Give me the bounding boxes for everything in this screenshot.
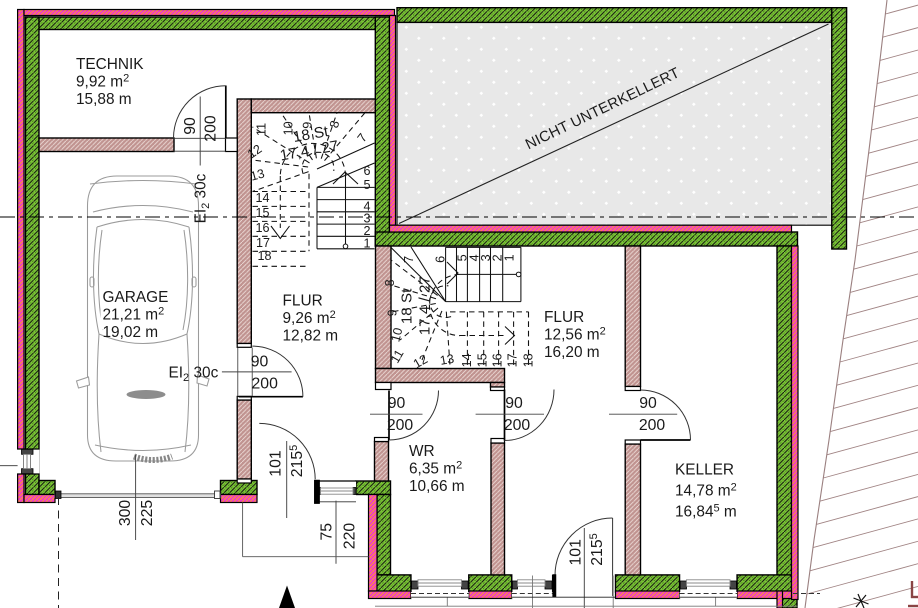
svg-text:6: 6	[363, 164, 370, 178]
svg-text:16: 16	[255, 221, 269, 235]
svg-text:6,35 m2: 6,35 m2	[409, 460, 462, 478]
svg-text:75: 75	[319, 523, 336, 541]
svg-text:90: 90	[251, 354, 269, 371]
svg-text:10,66 m: 10,66 m	[409, 478, 465, 495]
svg-text:EI2 30c: EI2 30c	[169, 365, 219, 385]
svg-text:16,20 m: 16,20 m	[544, 344, 600, 361]
svg-text:TECHNIK: TECHNIK	[76, 56, 144, 73]
svg-text:14,78 m2: 14,78 m2	[675, 482, 737, 500]
svg-text:14: 14	[460, 353, 474, 367]
svg-text:5: 5	[363, 178, 370, 192]
svg-text:200: 200	[504, 417, 531, 434]
svg-text:200: 200	[203, 115, 220, 142]
svg-text:90: 90	[182, 117, 199, 135]
svg-text:17: 17	[256, 236, 270, 250]
svg-text:2: 2	[363, 224, 370, 238]
svg-text:EI2 30c: EI2 30c	[193, 173, 213, 223]
svg-text:200: 200	[252, 376, 279, 393]
svg-text:6: 6	[434, 256, 448, 263]
svg-text:9,26 m2: 9,26 m2	[283, 309, 336, 327]
svg-text:17,4 / 27: 17,4 / 27	[417, 276, 434, 335]
svg-text:101: 101	[267, 450, 284, 477]
svg-text:WR: WR	[409, 443, 435, 460]
svg-text:FLUR: FLUR	[283, 293, 323, 310]
svg-text:15: 15	[476, 353, 490, 367]
svg-text:16: 16	[491, 353, 505, 367]
svg-text:90: 90	[388, 395, 406, 412]
svg-text:18 St: 18 St	[398, 288, 415, 324]
svg-text:13: 13	[439, 352, 455, 368]
svg-text:90: 90	[639, 395, 657, 412]
svg-text:200: 200	[387, 417, 414, 434]
svg-text:17: 17	[506, 353, 520, 367]
svg-text:18: 18	[522, 353, 536, 367]
svg-text:21,21 m2: 21,21 m2	[103, 306, 165, 324]
svg-text:15: 15	[255, 206, 269, 220]
svg-text:4: 4	[468, 254, 482, 261]
svg-text:12,56 m2: 12,56 m2	[544, 326, 606, 344]
svg-text:19,02 m: 19,02 m	[103, 324, 159, 341]
svg-text:1: 1	[363, 236, 370, 250]
svg-text:300: 300	[117, 500, 134, 527]
svg-text:12,82 m: 12,82 m	[283, 328, 339, 345]
svg-text:101: 101	[567, 539, 584, 566]
svg-text:225: 225	[139, 500, 156, 527]
svg-text:1: 1	[503, 254, 517, 261]
svg-text:FLUR: FLUR	[544, 309, 584, 326]
svg-text:8: 8	[383, 279, 397, 286]
svg-text:14: 14	[255, 191, 269, 205]
svg-text:KELLER: KELLER	[675, 462, 734, 479]
svg-text:90: 90	[505, 395, 523, 412]
svg-text:200: 200	[639, 417, 666, 434]
svg-text:4: 4	[363, 199, 370, 213]
svg-text:7: 7	[402, 256, 416, 263]
svg-text:GARAGE: GARAGE	[103, 289, 169, 306]
svg-text:3: 3	[363, 212, 370, 226]
svg-text:15,88 m: 15,88 m	[76, 91, 132, 108]
svg-text:11: 11	[255, 123, 269, 136]
svg-text:220: 220	[342, 523, 359, 550]
svg-text:16,845 m: 16,845 m	[675, 503, 737, 521]
svg-text:9,92 m2: 9,92 m2	[76, 72, 129, 90]
svg-text:5: 5	[456, 254, 470, 261]
svg-text:18: 18	[257, 249, 271, 263]
